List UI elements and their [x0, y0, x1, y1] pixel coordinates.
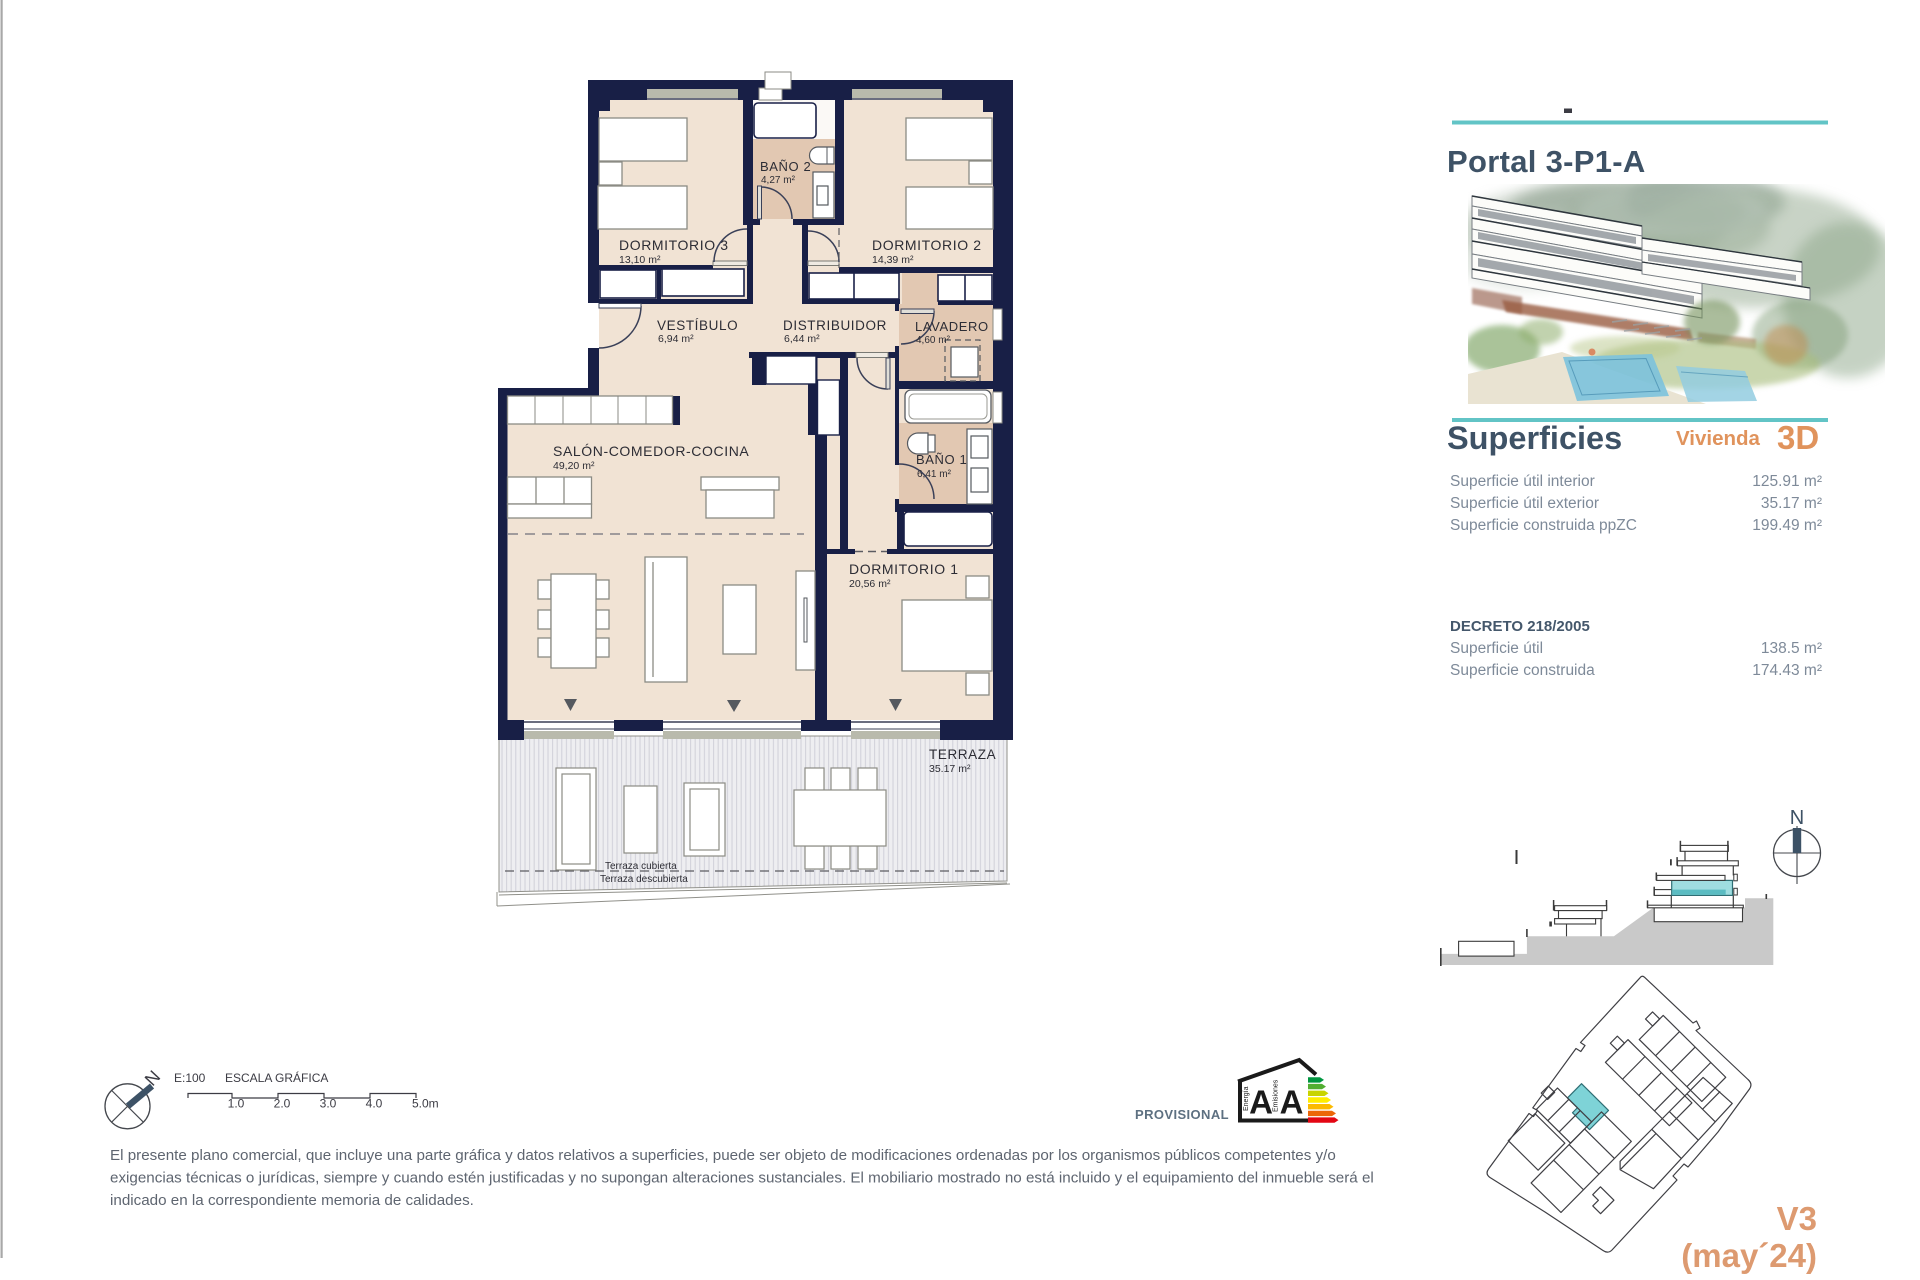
svg-text:TERRAZA: TERRAZA — [929, 747, 996, 762]
svg-text:6,44 m²: 6,44 m² — [784, 333, 820, 345]
svg-text:indicado en la correspondiente: indicado en la correspondiente memoria d… — [110, 1192, 474, 1209]
svg-text:35.17 m²: 35.17 m² — [929, 763, 971, 775]
svg-text:VESTÍBULO: VESTÍBULO — [657, 318, 738, 333]
svg-text:3D: 3D — [1777, 419, 1819, 456]
svg-text:5.0m: 5.0m — [412, 1097, 439, 1111]
svg-text:4,27 m²: 4,27 m² — [761, 175, 796, 186]
svg-text:Terraza descubierta: Terraza descubierta — [600, 874, 688, 885]
svg-text:DORMITORIO 3: DORMITORIO 3 — [619, 237, 729, 253]
svg-text:Superficies: Superficies — [1447, 420, 1622, 456]
svg-text:20,56 m²: 20,56 m² — [849, 578, 891, 590]
svg-text:13,10 m²: 13,10 m² — [619, 254, 661, 266]
svg-text:N: N — [1790, 807, 1804, 829]
svg-text:Vivienda: Vivienda — [1676, 427, 1761, 450]
svg-text:(may´24): (may´24) — [1681, 1237, 1817, 1274]
svg-text:DORMITORIO 2: DORMITORIO 2 — [872, 237, 982, 253]
svg-text:Superficie útil: Superficie útil — [1450, 640, 1543, 657]
svg-text:BAÑO 2: BAÑO 2 — [760, 159, 811, 174]
svg-text:El presente plano comercial, q: El presente plano comercial, que incluye… — [110, 1147, 1336, 1164]
svg-text:PROVISIONAL: PROVISIONAL — [1135, 1107, 1229, 1122]
svg-text:LAVADERO: LAVADERO — [915, 319, 989, 334]
svg-text:138.5 m²: 138.5 m² — [1761, 640, 1822, 657]
svg-text:3.0: 3.0 — [320, 1097, 337, 1111]
svg-text:199.49 m²: 199.49 m² — [1752, 517, 1822, 534]
svg-text:Terraza cubierta: Terraza cubierta — [605, 861, 677, 872]
svg-text:V3: V3 — [1777, 1200, 1817, 1237]
svg-text:Superficie construida ppZC: Superficie construida ppZC — [1450, 517, 1637, 534]
svg-text:A: A — [1280, 1084, 1304, 1121]
svg-text:A: A — [1249, 1084, 1273, 1121]
svg-text:DECRETO 218/2005: DECRETO 218/2005 — [1450, 618, 1590, 635]
svg-text:1.0: 1.0 — [228, 1097, 245, 1111]
svg-text:4,60 m²: 4,60 m² — [916, 335, 951, 346]
svg-text:125.91 m²: 125.91 m² — [1752, 473, 1822, 490]
svg-text:E:100: E:100 — [174, 1071, 206, 1085]
svg-text:35.17 m²: 35.17 m² — [1761, 495, 1822, 512]
svg-text:Superficie útil exterior: Superficie útil exterior — [1450, 495, 1599, 512]
svg-text:Superficie útil interior: Superficie útil interior — [1450, 473, 1595, 490]
svg-text:SALÓN-COMEDOR-COCINA: SALÓN-COMEDOR-COCINA — [553, 443, 749, 459]
svg-text:4.0: 4.0 — [366, 1097, 383, 1111]
svg-text:BAÑO 1: BAÑO 1 — [916, 452, 967, 467]
svg-text:Portal 3-P1-A: Portal 3-P1-A — [1447, 144, 1646, 179]
svg-text:14,39 m²: 14,39 m² — [872, 254, 914, 266]
svg-text:Energía: Energía — [1243, 1086, 1250, 1111]
svg-text:DISTRIBUIDOR: DISTRIBUIDOR — [783, 318, 887, 333]
svg-text:Emisiones: Emisiones — [1273, 1079, 1280, 1112]
svg-text:49,20 m²: 49,20 m² — [553, 460, 595, 472]
svg-text:2.0: 2.0 — [274, 1097, 291, 1111]
svg-text:ESCALA GRÁFICA: ESCALA GRÁFICA — [225, 1070, 328, 1085]
svg-text:174.43 m²: 174.43 m² — [1752, 662, 1822, 679]
svg-text:DORMITORIO 1: DORMITORIO 1 — [849, 561, 959, 577]
svg-text:Superficie construida: Superficie construida — [1450, 662, 1595, 679]
svg-text:6,41 m²: 6,41 m² — [917, 469, 952, 480]
svg-text:exigencias técnicas o jurídica: exigencias técnicas o jurídicas, siempre… — [110, 1170, 1374, 1187]
svg-text:6,94 m²: 6,94 m² — [658, 333, 694, 345]
